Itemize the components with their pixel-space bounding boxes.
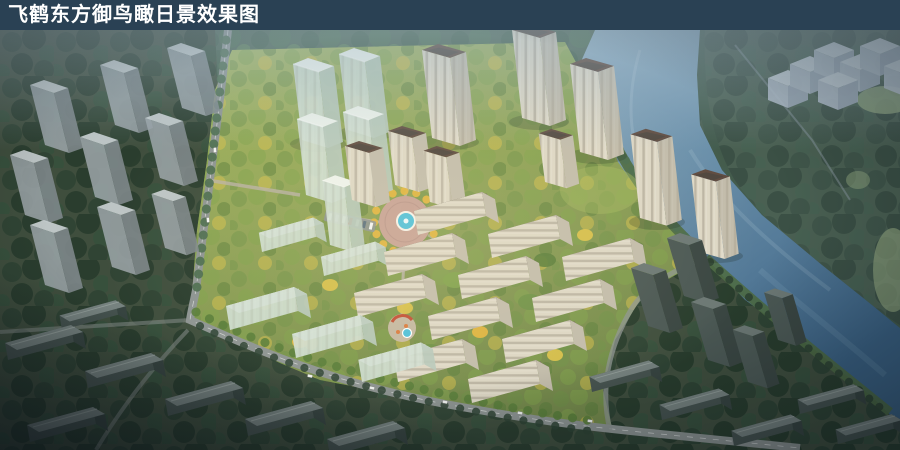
aerial-rendering (0, 30, 900, 450)
atmosphere-overlays (0, 30, 900, 450)
screenshot: 飞鹤东方御鸟瞰日景效果图 (0, 0, 900, 450)
page-title: 飞鹤东方御鸟瞰日景效果图 (8, 0, 260, 30)
title-banner: 飞鹤东方御鸟瞰日景效果图 (0, 0, 900, 30)
